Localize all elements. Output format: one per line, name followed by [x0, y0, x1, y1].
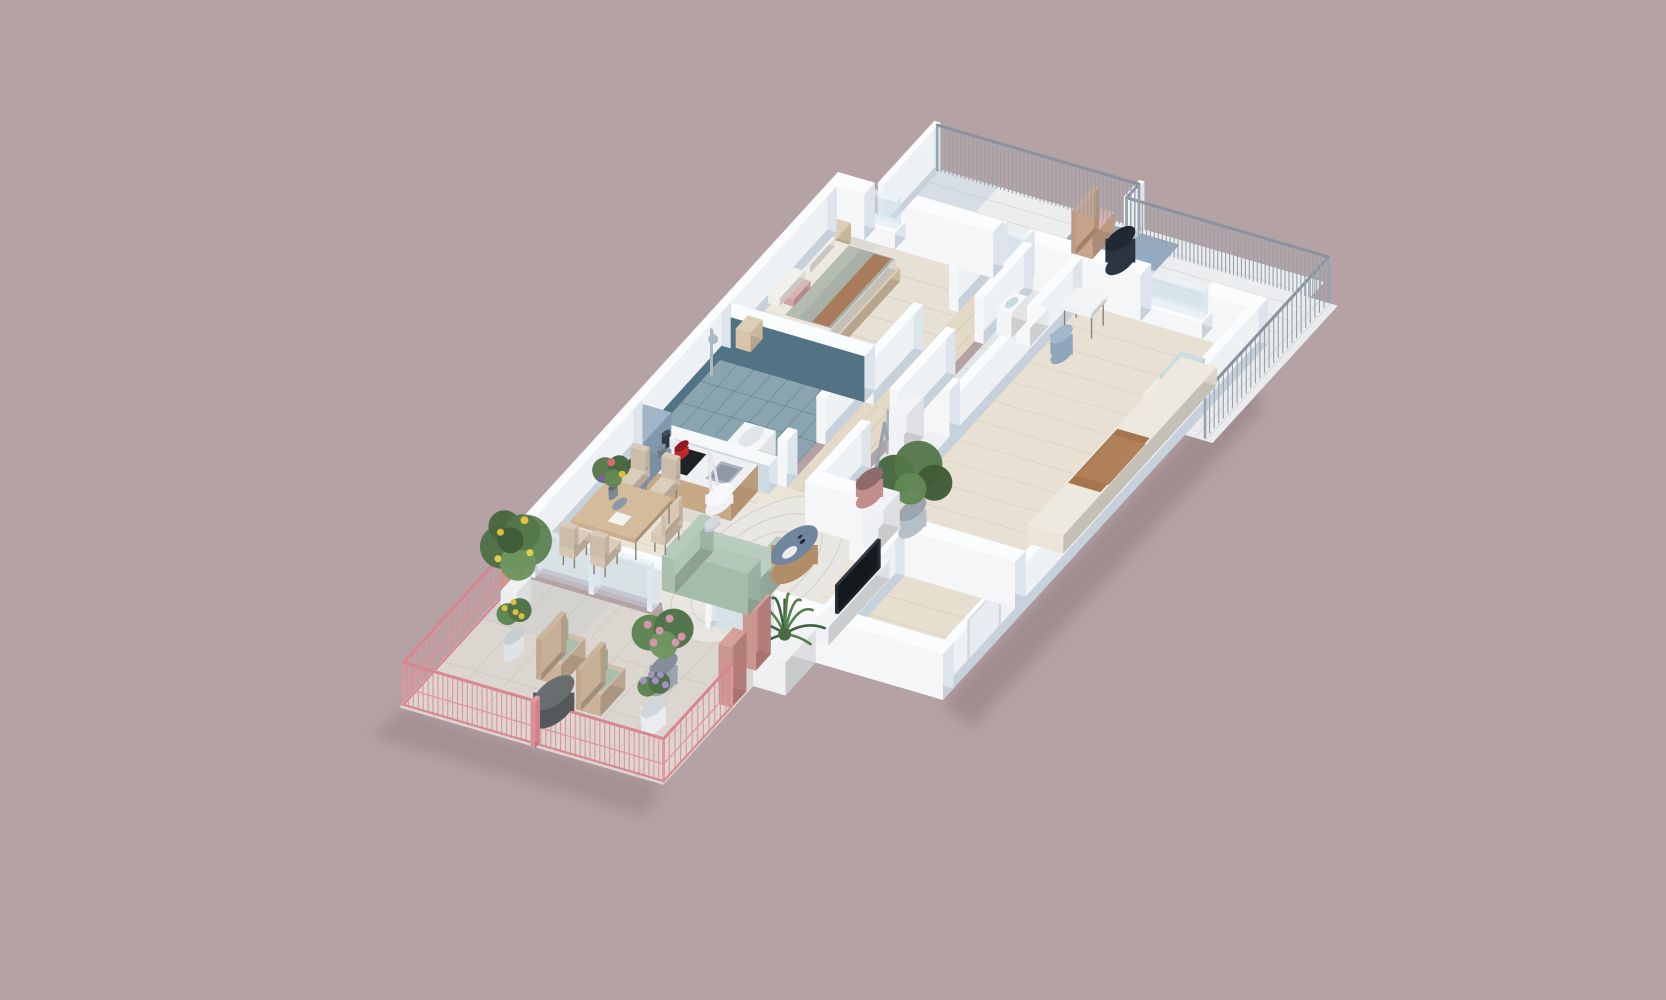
apartment-3d-floorplan: [0, 0, 1666, 1000]
floorplan-stage: [0, 0, 1666, 1000]
bathroom-east-wall-b: [778, 427, 798, 487]
terrace-gate-post: [531, 696, 540, 749]
